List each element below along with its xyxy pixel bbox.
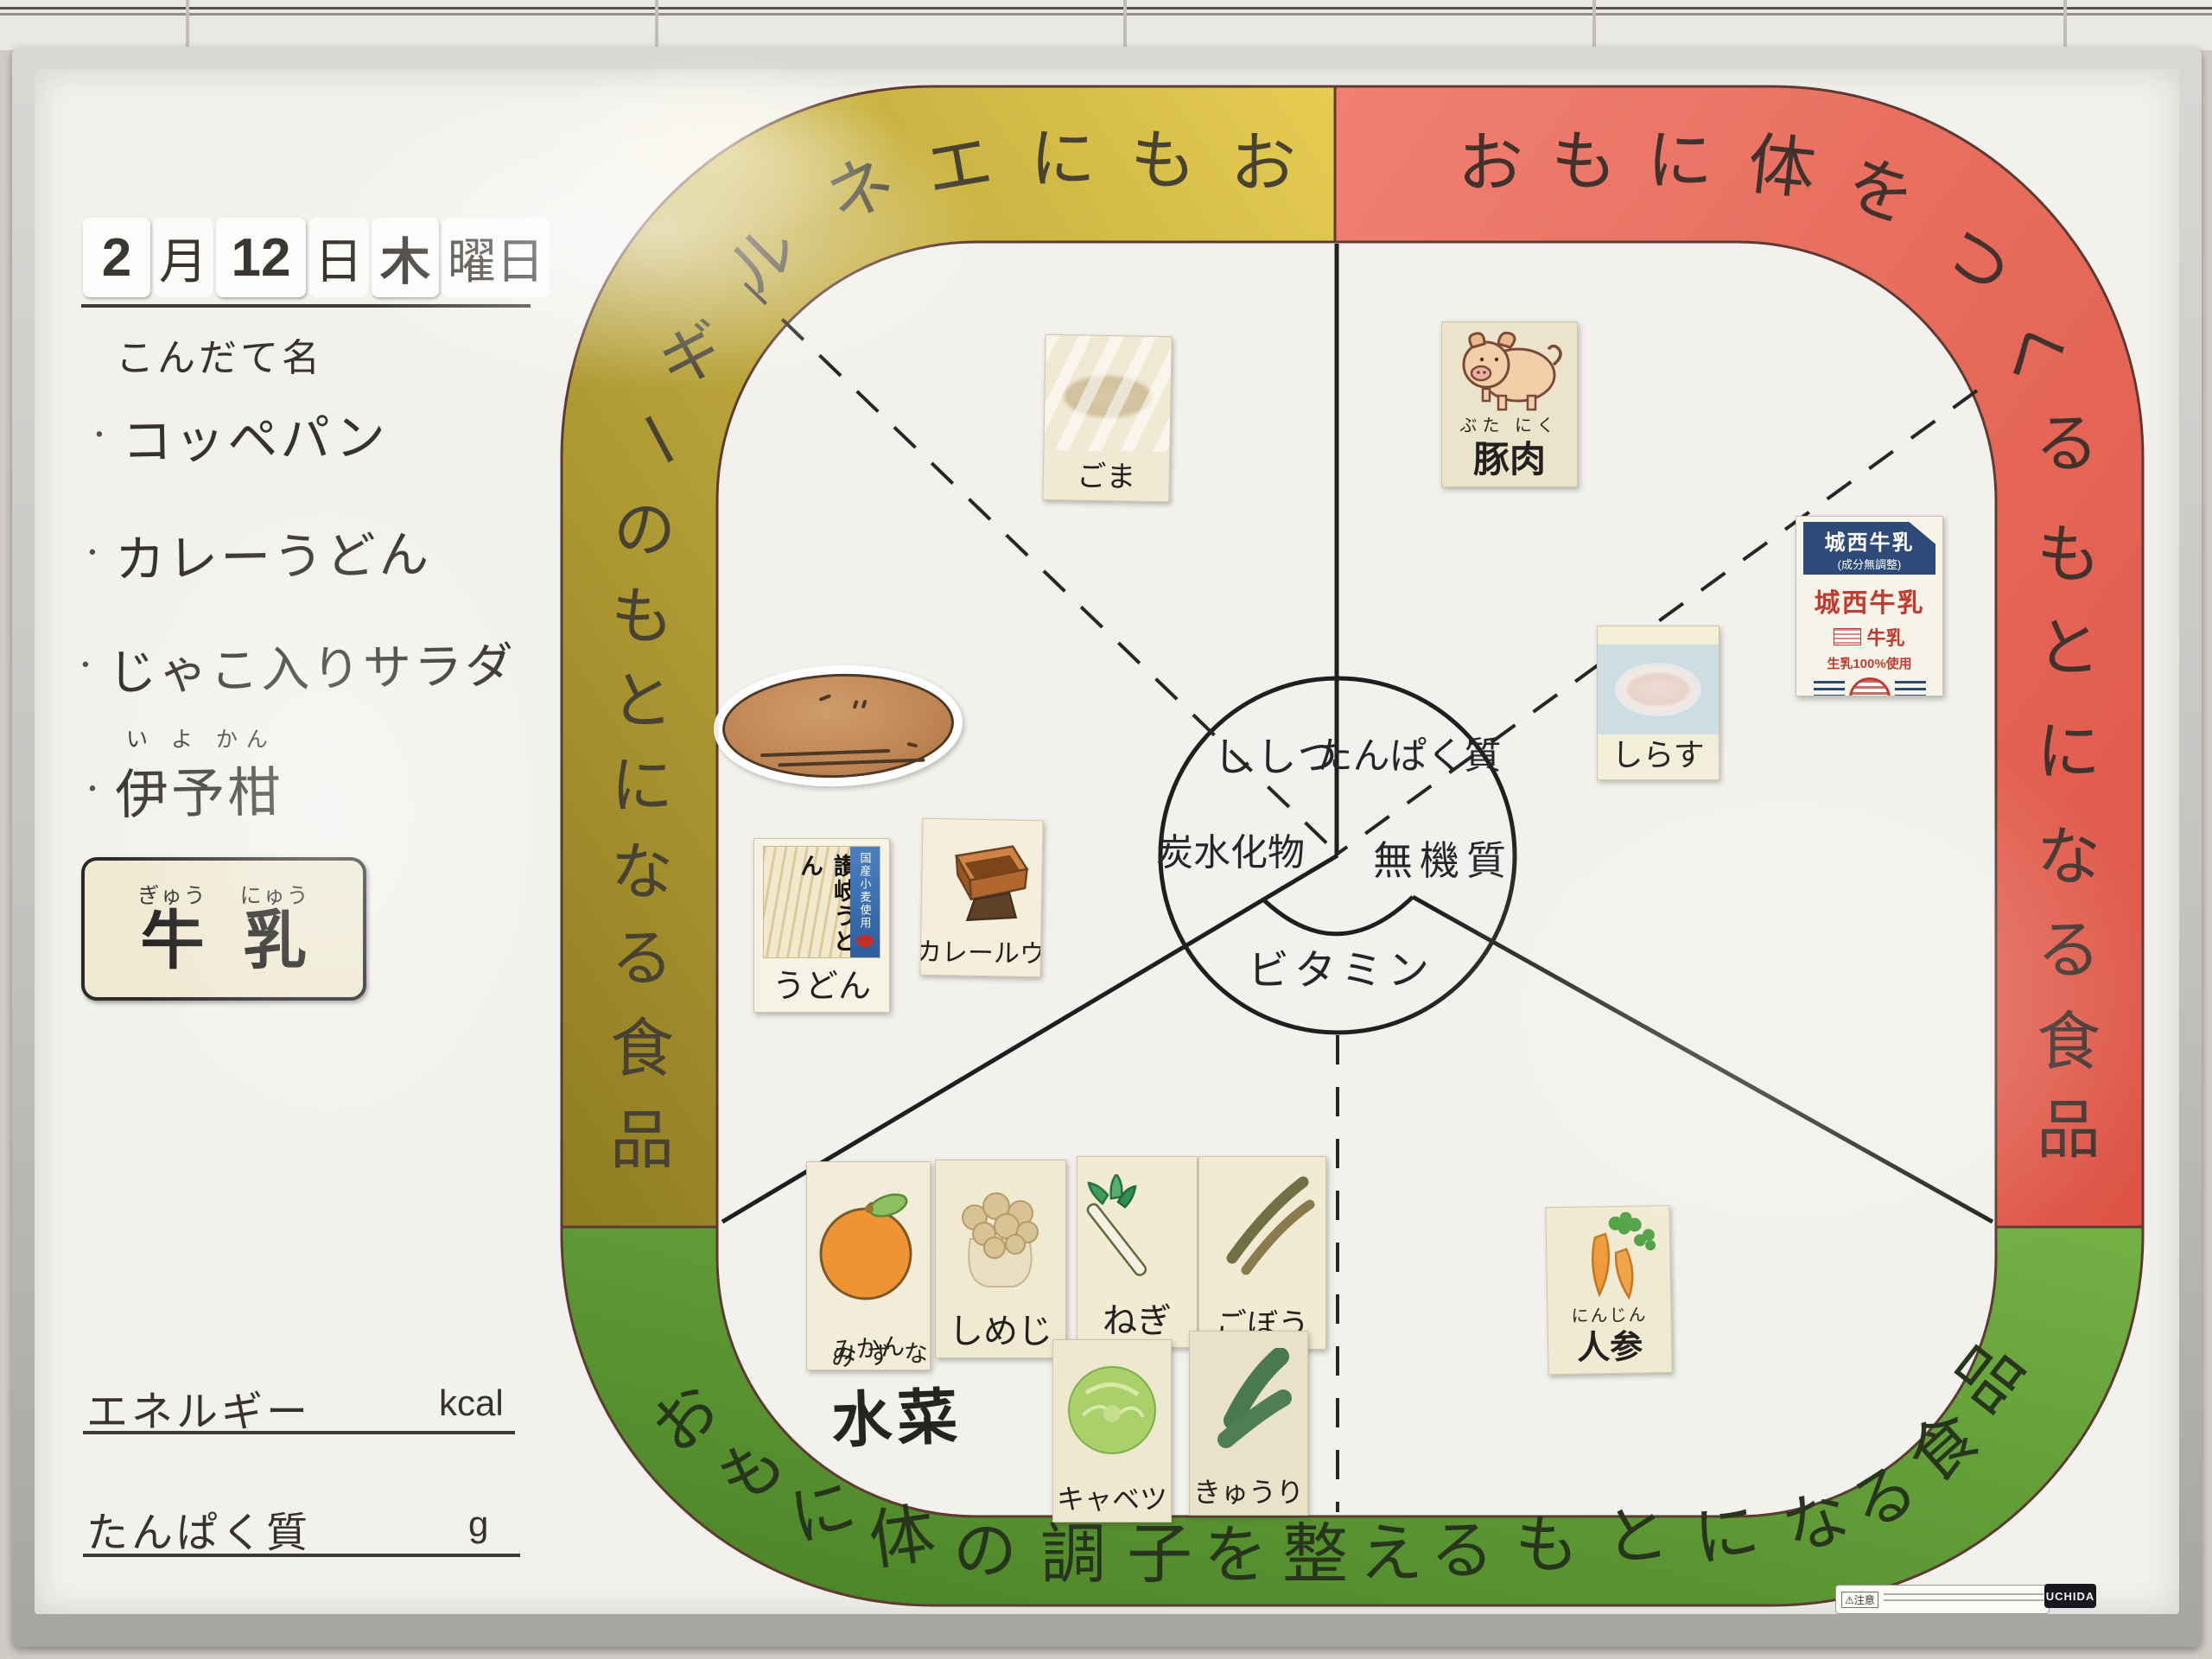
band-char: も xyxy=(1515,1513,1579,1577)
band-char: 食 xyxy=(610,1017,674,1081)
menu-item: ・伊予柑 xyxy=(79,748,284,829)
band-char: に xyxy=(611,755,673,817)
protein-unit: g xyxy=(468,1503,488,1545)
caution-sticker: ⚠注意 xyxy=(1835,1585,2050,1614)
food-card-curry-roux: カレールウ xyxy=(919,818,1043,977)
udon-package-side: 国産小麦使用 xyxy=(850,847,880,957)
food-label: きゅうり xyxy=(1193,1478,1304,1506)
band-char: 品 xyxy=(2037,1098,2101,1162)
food-label: しめじ xyxy=(949,1314,1052,1349)
band-char: な xyxy=(611,842,673,904)
menu-bullet: ・ xyxy=(73,652,102,681)
food-card-cucumber: きゅうり xyxy=(1189,1331,1308,1516)
band-char: る xyxy=(611,928,673,990)
date-month-unit: 月 xyxy=(154,218,213,297)
food-card-cabbage: キャベツ xyxy=(1052,1339,1172,1522)
band-char: ル xyxy=(717,213,810,305)
band-char: る xyxy=(1840,1454,1927,1541)
band-char: に xyxy=(1030,127,1096,193)
milk-char: ぎゅう 牛 xyxy=(137,886,207,973)
food-card-sesame: ごま xyxy=(1042,334,1172,503)
band-char: に xyxy=(1647,129,1713,194)
red-seal-icon xyxy=(856,935,874,947)
band-char: の xyxy=(953,1519,1017,1583)
nutrient-carbohydrate: 炭水化物 xyxy=(1156,836,1305,873)
menu-bullet: ・ xyxy=(79,539,109,569)
band-char: も xyxy=(708,1427,795,1514)
nutrient-mineral: 無機質 xyxy=(1373,841,1513,880)
nutrient-protein: たんぱく質 xyxy=(1316,739,1502,776)
food-label: 豚肉 xyxy=(1473,442,1546,478)
milk-carton-subheader: (成分無調整) xyxy=(1803,556,1935,572)
menu-item-text: コッペパン xyxy=(122,410,389,470)
band-char: に xyxy=(783,1472,862,1552)
date-day-unit: 日 xyxy=(309,218,368,297)
food-card-gobo: ごぼう xyxy=(1198,1156,1326,1350)
sesame-illustration xyxy=(1044,335,1171,459)
curry-roux-illustration xyxy=(921,819,1042,937)
shirasu-photo xyxy=(1598,645,1719,734)
caution-fineprint xyxy=(1884,1593,2044,1605)
menu-item-text: カレーうどん xyxy=(115,526,432,588)
nutrient-vitamin: ビタミン xyxy=(1248,950,1434,992)
food-card-carrot: にんじん 人参 xyxy=(1545,1205,1672,1375)
band-char: に xyxy=(1689,1497,1764,1572)
food-label: ねぎ xyxy=(1103,1304,1172,1338)
cucumber-illustration xyxy=(1190,1332,1307,1473)
band-char: 体 xyxy=(865,1501,939,1575)
pig-illustration xyxy=(1442,322,1577,417)
band-char: お xyxy=(1230,131,1296,197)
band-char: つ xyxy=(1929,214,2022,307)
band-char: 体 xyxy=(1745,130,1819,204)
food-furigana: ぶた にく xyxy=(1459,417,1559,435)
food-label: うどん xyxy=(772,970,871,1003)
band-char: 調 xyxy=(1040,1522,1106,1588)
band-char: と xyxy=(611,671,673,733)
mikan-illustration xyxy=(807,1162,930,1332)
milk-magnet-card: ぎゅう 牛 にゅう 乳 xyxy=(81,857,366,1001)
mizuna-label: 水菜 xyxy=(829,1368,963,1459)
band-char: も xyxy=(1130,129,1196,194)
date-month-number: 2 xyxy=(83,218,150,297)
food-card-milk-carton: 城西牛乳 (成分無調整) 城西牛乳 牛乳 生乳100%使用 要冷蔵10℃以下 2… xyxy=(1796,516,1943,696)
milk-emblem-icon xyxy=(1849,677,1891,696)
band-char: も xyxy=(1551,130,1617,195)
food-card-udon: 讃岐うどん 国産小麦使用 うどん xyxy=(753,838,890,1013)
milk-kanji: 乳 xyxy=(240,909,310,973)
band-char: 食 xyxy=(1897,1402,1990,1494)
band-char: と xyxy=(2037,616,2101,680)
date-underline xyxy=(81,304,531,308)
caution-title: ⚠注意 xyxy=(1841,1592,1878,1608)
band-char: 品 xyxy=(610,1109,674,1173)
milk-furigana: ぎゅう xyxy=(137,886,207,907)
milk-carton-emblem-row xyxy=(1814,677,1926,696)
mizuna-handwriting: みずな 水菜 xyxy=(831,1336,963,1458)
energy-blank-line xyxy=(83,1431,515,1434)
milk-carton-brand: 城西牛乳 xyxy=(1815,582,1925,620)
milk-carton-type-row: 牛乳 xyxy=(1834,623,1904,651)
menu-item: ・じゃこ入りサラダ xyxy=(72,627,516,705)
milk-carton-class-box xyxy=(1834,628,1861,645)
band-char: 子 xyxy=(1127,1522,1192,1588)
band-char: く xyxy=(1989,309,2076,397)
date-row: 2 月 12 日 木 曜日 xyxy=(83,214,550,301)
protein-label: たんぱく質 xyxy=(86,1498,311,1559)
energy-label: エネルギー xyxy=(86,1377,311,1438)
band-char: お xyxy=(1458,131,1523,197)
band-char: ー xyxy=(614,398,698,482)
milk-carton-header: 城西牛乳 (成分無調整) xyxy=(1803,522,1935,575)
band-char: る xyxy=(2035,412,2099,476)
band-char: え xyxy=(1359,1522,1423,1586)
menu-item: ・コッペパン xyxy=(86,397,388,474)
protein-blank-line xyxy=(83,1554,520,1557)
band-char: 品 xyxy=(1943,1332,2036,1424)
band-char: エ xyxy=(921,129,997,205)
milk-carton-note: 生乳100%使用 xyxy=(1827,654,1911,672)
food-furigana: にんじん xyxy=(1571,1306,1647,1325)
mizuna-furigana: みずな xyxy=(830,1332,963,1374)
udon-package: 讃岐うどん 国産小麦使用 xyxy=(754,839,889,965)
food-card-shimeji: しめじ xyxy=(935,1160,1066,1358)
food-label: 人参 xyxy=(1577,1331,1643,1364)
band-char: の xyxy=(613,499,676,562)
band-char: ネ xyxy=(817,146,905,234)
band-char: も xyxy=(611,586,673,648)
date-weekday: 木 xyxy=(372,218,439,297)
band-char: も xyxy=(2037,523,2101,587)
band-char: 食 xyxy=(2037,1010,2101,1074)
date-day-number: 12 xyxy=(216,218,306,297)
bread-illustration xyxy=(721,670,956,781)
shimeji-illustration xyxy=(936,1160,1065,1309)
gobo-illustration xyxy=(1199,1157,1325,1304)
milk-carton-brand-top: 城西牛乳 xyxy=(1803,525,1935,556)
food-label: ごま xyxy=(1077,461,1136,492)
milk-char: にゅう 乳 xyxy=(240,886,310,973)
milk-furigana: にゅう xyxy=(240,886,310,907)
menu-bullet: ・ xyxy=(86,421,116,450)
food-label: キャベツ xyxy=(1057,1485,1167,1513)
menu-bullet: ・ xyxy=(79,775,109,804)
milk-carton-type: 牛乳 xyxy=(1866,623,1904,651)
stripe-decoration xyxy=(1895,681,1926,696)
menu-item: ・カレーうどん xyxy=(79,513,431,592)
food-label: カレールウ xyxy=(919,940,1043,969)
band-char: ギ xyxy=(652,317,731,396)
food-card-pork: ぶた にく 豚肉 xyxy=(1441,321,1578,487)
milk-kanji: 牛 xyxy=(137,909,207,973)
food-label: しらす xyxy=(1611,740,1704,771)
band-char: な xyxy=(2037,825,2101,889)
menu-item-text: じゃこ入りサラダ xyxy=(108,639,517,700)
band-char: る xyxy=(2037,918,2101,982)
food-card-shirasu: しらす xyxy=(1597,626,1719,780)
band-char: 整 xyxy=(1282,1522,1348,1588)
uchida-brand-badge: UCHIDA xyxy=(2044,1584,2096,1608)
menu-item-text: 伊予柑 xyxy=(115,763,284,825)
udon-side-text: 国産小麦使用 xyxy=(857,852,874,930)
stripe-decoration xyxy=(1814,681,1845,696)
food-card-negi: ねぎ xyxy=(1077,1156,1198,1348)
date-weekday-unit: 曜日 xyxy=(442,218,550,297)
band-char: る xyxy=(1430,1519,1494,1583)
negi-illustration xyxy=(1077,1157,1197,1299)
menu-heading: こんだて名 xyxy=(116,327,323,382)
band-char: を xyxy=(1204,1523,1268,1587)
band-char: を xyxy=(1838,149,1923,235)
energy-unit: kcal xyxy=(439,1382,504,1424)
cabbage-illustration xyxy=(1053,1340,1171,1480)
carrot-illustration xyxy=(1546,1206,1670,1308)
band-char: に xyxy=(2037,720,2101,784)
band-char: と xyxy=(1602,1502,1671,1571)
